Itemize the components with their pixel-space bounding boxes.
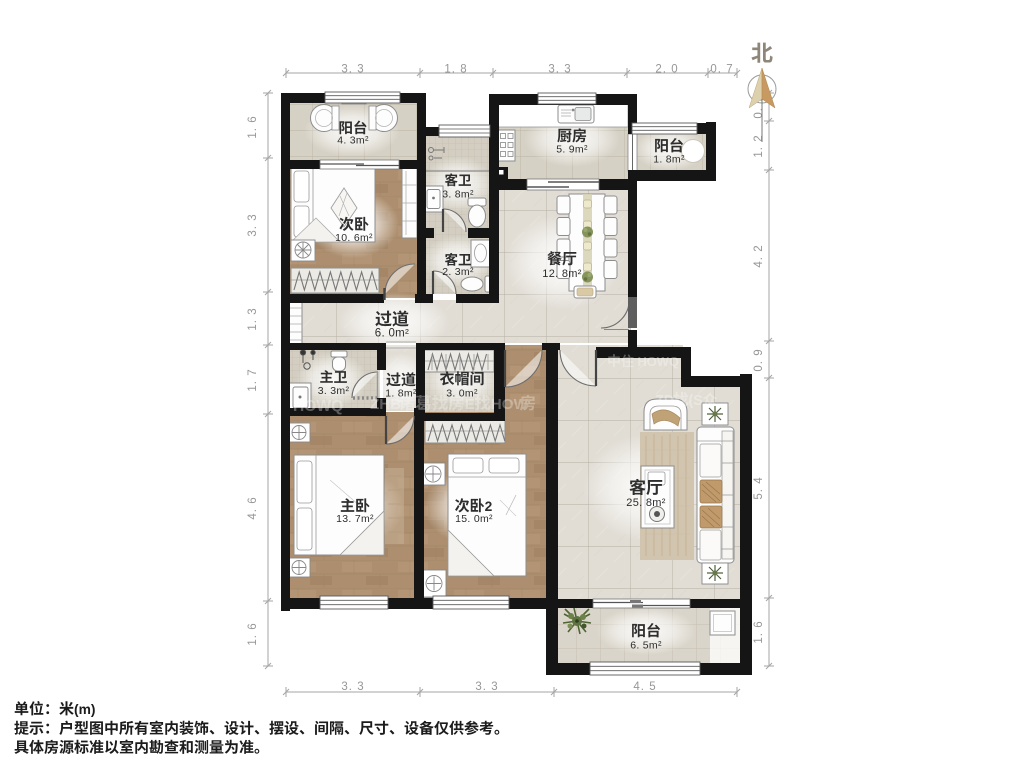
svg-text:住 HOWQ: 住 HOWQ: [621, 354, 679, 369]
svg-text:5. 4: 5. 4: [753, 476, 765, 499]
svg-text:4. 5: 4. 5: [633, 681, 656, 693]
svg-text:0. 9: 0. 9: [753, 348, 765, 371]
svg-text:1. 8: 1. 8: [444, 64, 467, 76]
svg-text:10. 6m²: 10. 6m²: [335, 232, 373, 244]
svg-text:ZHB: ZHB: [370, 396, 401, 413]
svg-text:4. 6: 4. 6: [247, 496, 259, 519]
svg-text:E: E: [465, 396, 475, 413]
svg-text:3. 3: 3. 3: [475, 681, 498, 693]
svg-text:2: 2: [485, 499, 493, 514]
svg-text:15. 0m²: 15. 0m²: [455, 513, 493, 525]
svg-text:12. 8m²: 12. 8m²: [542, 268, 581, 280]
svg-text:6. 5m²: 6. 5m²: [630, 640, 662, 652]
svg-text:(S众: (S众: [689, 392, 718, 409]
svg-text:3. 8m²: 3. 8m²: [442, 189, 474, 201]
svg-text:6. 0m²: 6. 0m²: [375, 328, 409, 340]
svg-text:1. 3: 1. 3: [247, 307, 259, 330]
svg-text:3. 3: 3. 3: [247, 213, 259, 236]
svg-text:1. 2: 1. 2: [753, 134, 765, 157]
svg-text:2. 0: 2. 0: [655, 64, 678, 76]
svg-text:0. 7: 0. 7: [710, 64, 733, 76]
svg-text:1. 8m²: 1. 8m²: [653, 154, 685, 166]
svg-text:2. 3m²: 2. 3m²: [442, 266, 474, 278]
svg-text:1. 6: 1. 6: [753, 620, 765, 643]
svg-text:HOWQ: HOWQ: [293, 398, 343, 415]
svg-text:4. 2: 4. 2: [753, 244, 765, 267]
svg-text:5. 9m²: 5. 9m²: [556, 144, 588, 156]
svg-text:3. 3: 3. 3: [548, 64, 571, 76]
svg-text:13. 7m²: 13. 7m²: [336, 513, 374, 525]
svg-text:(m): (m): [74, 702, 95, 717]
svg-text:4. 3m²: 4. 3m²: [337, 135, 369, 147]
svg-text:1. 7: 1. 7: [247, 368, 259, 391]
svg-text:ZD: ZD: [655, 393, 674, 409]
svg-text:3. 3m²: 3. 3m²: [318, 385, 350, 397]
svg-text:3. 3: 3. 3: [341, 64, 364, 76]
svg-text:3. 3: 3. 3: [341, 681, 364, 693]
svg-text:1. 6: 1. 6: [247, 115, 259, 138]
svg-text:1. 6: 1. 6: [247, 622, 259, 645]
svg-text:25. 8m²: 25. 8m²: [626, 497, 665, 509]
